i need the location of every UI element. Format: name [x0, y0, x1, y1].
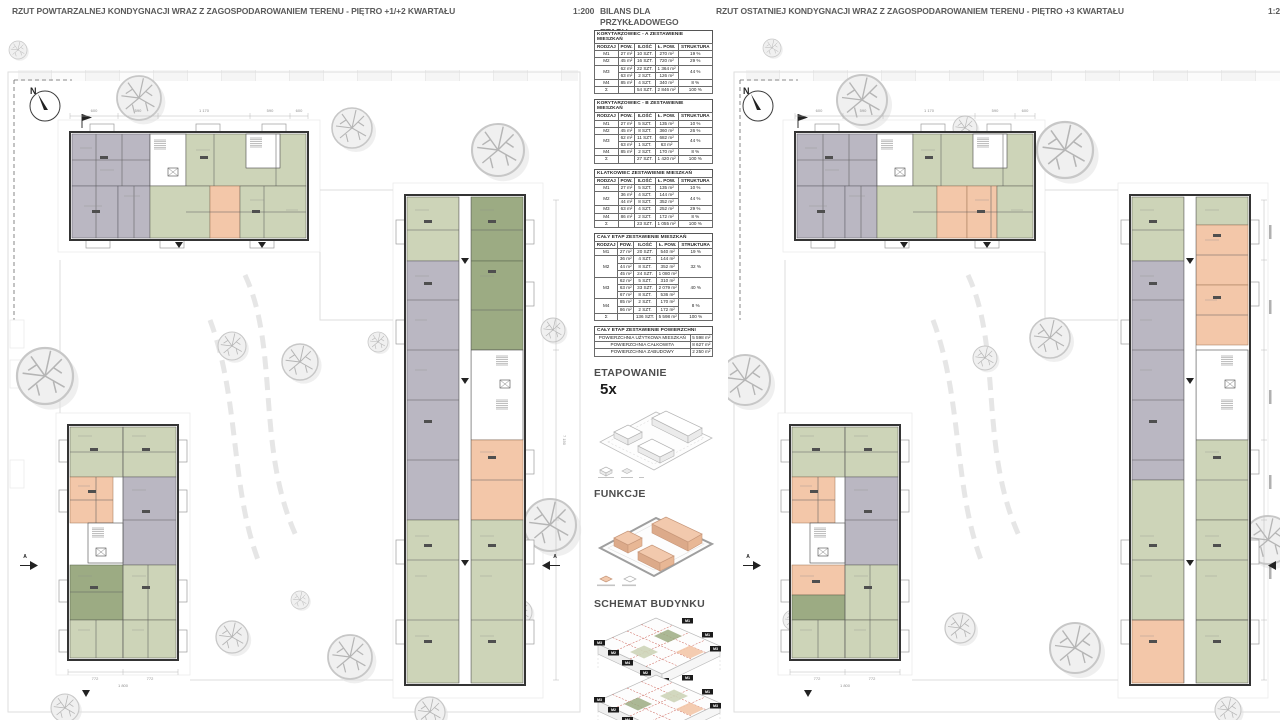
building-a-left: 600 590 1 170 590 600 [70, 108, 308, 248]
svg-text:M1: M1 [705, 633, 710, 637]
right-plan-scale: 1:2 [1268, 6, 1280, 16]
svg-text:M3: M3 [713, 647, 718, 651]
svg-text:A: A [23, 554, 27, 560]
svg-text:M3: M3 [713, 704, 718, 708]
svg-text:772: 772 [147, 676, 154, 681]
center-title-line1: BILANS DLA PRZYKŁADOWEGO [600, 6, 679, 27]
svg-text:M2: M2 [643, 671, 648, 675]
svg-text:M3: M3 [597, 641, 602, 645]
schemat-heading: SCHEMAT BUDYNKU [594, 598, 724, 610]
presentation-board: RZUT POWTARZALNEJ KONDYGNACJI WRAZ Z ZAG… [0, 0, 1280, 720]
svg-text:772: 772 [814, 676, 821, 681]
svg-text:M2: M2 [611, 651, 616, 655]
schemat-level-2: M3 M2 M4 M2 M3 M1 M1 M3 [594, 675, 721, 720]
funkcje-diagram [594, 502, 720, 588]
svg-text:600: 600 [296, 108, 303, 113]
svg-text:7 150: 7 150 [562, 435, 567, 446]
center-column: KORYTARZOWIEC - A ZESTAWIENIE MIESZKAŃRO… [594, 30, 724, 720]
table-caly-etap-mieszkania: CAŁY ETAP ZESTAWIENIE MIESZKAŃRODZAJPOW.… [594, 233, 713, 321]
svg-text:1 800: 1 800 [118, 683, 129, 688]
svg-text:1 800: 1 800 [840, 683, 851, 688]
svg-text:772: 772 [92, 676, 99, 681]
svg-text:A: A [553, 554, 557, 560]
left-plan-scale: 1:200 [573, 6, 594, 16]
right-plan-title: RZUT OSTATNIEJ KONDYGNACJI WRAZ Z ZAGOSP… [716, 6, 1124, 16]
funkcje-heading: FUNKCJE [594, 488, 724, 500]
table-caly-etap-powierzchnie: CAŁY ETAP ZESTAWIENIE POWIERZCHNIPOWIERZ… [594, 326, 713, 357]
table-klatkowiec: KLATKOWIEC ZESTAWIENIE MIESZKAŃRODZAJPOW… [594, 169, 713, 228]
svg-text:590: 590 [267, 108, 274, 113]
funkcje-legend [597, 576, 636, 586]
svg-text:590: 590 [135, 108, 142, 113]
table-korytarzowiec-a: KORYTARZOWIEC - A ZESTAWIENIE MIESZKAŃRO… [594, 30, 713, 94]
svg-text:600: 600 [816, 108, 823, 113]
svg-text:1 170: 1 170 [924, 108, 935, 113]
left-plan-title: RZUT POWTARZALNEJ KONDYGNACJI WRAZ Z ZAG… [12, 6, 455, 16]
svg-text:772: 772 [869, 676, 876, 681]
svg-text:N: N [743, 86, 750, 96]
site-plan-left: N [0, 20, 590, 720]
svg-text:M2: M2 [611, 708, 616, 712]
building-b-left: 772 772 1 800 [59, 425, 187, 697]
table-korytarzowiec-b: KORYTARZOWIEC - B ZESTAWIENIE MIESZKAŃRO… [594, 99, 713, 163]
schemat-budynku-diagram: M3 M2 M4 M2 M3 M1 M1 M3 [594, 612, 724, 720]
north-arrow: N [30, 86, 60, 121]
svg-text:600: 600 [1022, 108, 1029, 113]
etapowanie-heading: ETAPOWANIE [594, 367, 724, 379]
building-c-right [1121, 195, 1272, 685]
etapowanie-legend [598, 467, 644, 478]
svg-text:M1: M1 [685, 619, 690, 623]
building-a-right: 600 590 1 170 590 600 [795, 108, 1035, 248]
etapowanie-diagram [594, 398, 720, 478]
svg-text:N: N [30, 86, 37, 96]
svg-text:M1: M1 [705, 690, 710, 694]
building-c-left: 7 150 [396, 195, 567, 685]
svg-text:590: 590 [860, 108, 867, 113]
svg-text:590: 590 [992, 108, 999, 113]
svg-text:M3: M3 [597, 698, 602, 702]
svg-text:M1: M1 [685, 676, 690, 680]
north-arrow-right: N [743, 86, 773, 121]
site-plan-right: N [728, 20, 1280, 720]
svg-text:1 170: 1 170 [199, 108, 210, 113]
svg-text:A: A [746, 554, 750, 560]
building-b-right: 772 772 1 800 [781, 425, 909, 697]
svg-text:600: 600 [91, 108, 98, 113]
etapowanie-multiplier: 5x [600, 381, 724, 398]
